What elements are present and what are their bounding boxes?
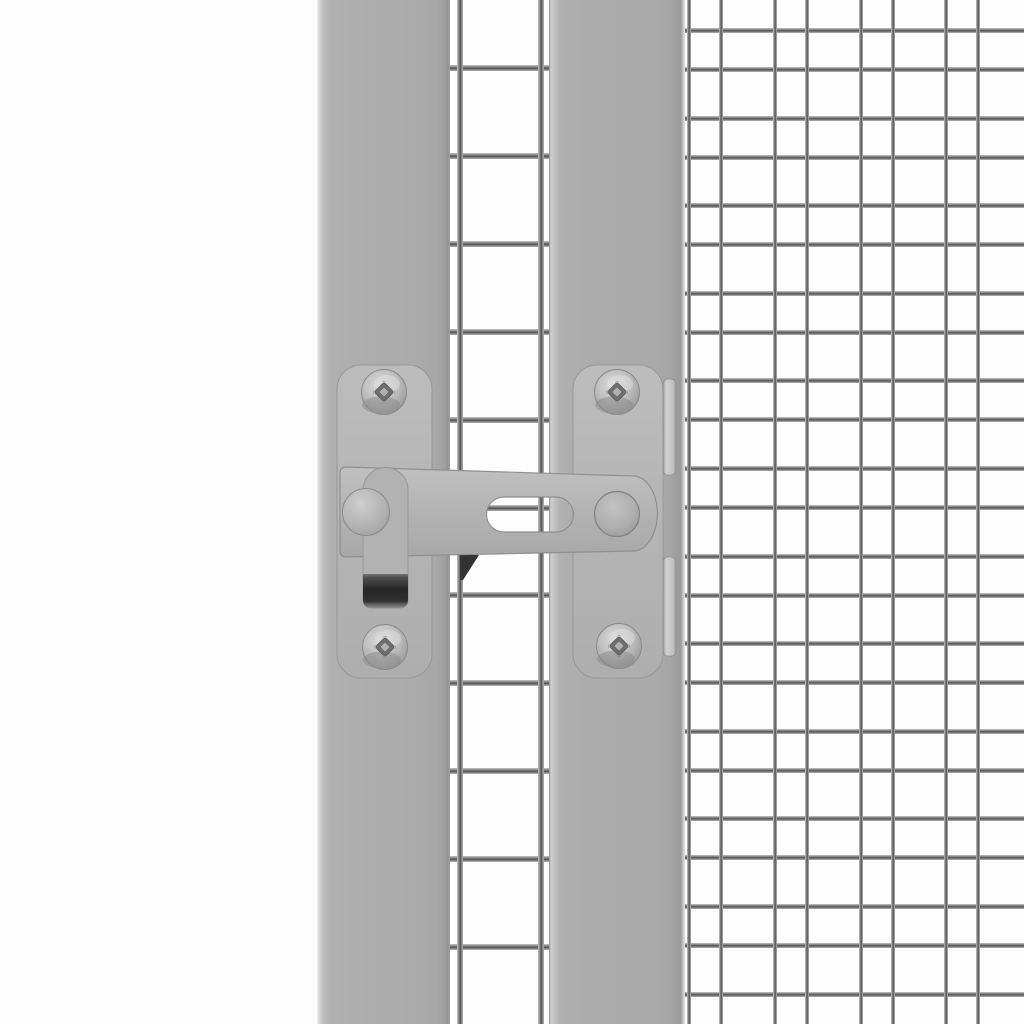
product-photo — [0, 0, 1024, 1024]
mesh-wire-horizontal — [450, 65, 549, 71]
mesh-wire-horizontal — [685, 992, 1024, 997]
mesh-wire-horizontal — [685, 28, 1024, 33]
mesh-wire-horizontal — [685, 641, 1024, 646]
mesh-wire-horizontal — [450, 944, 549, 950]
mesh-wire-vertical — [538, 0, 544, 1024]
mesh-wire-horizontal — [685, 67, 1024, 72]
mesh-wire-vertical — [891, 0, 895, 1024]
mesh-wire-horizontal — [685, 904, 1024, 909]
mesh-wire-horizontal — [685, 155, 1024, 160]
mesh-wire-horizontal — [685, 378, 1024, 383]
mesh-wire-horizontal — [685, 330, 1024, 335]
mesh-wire-vertical — [944, 0, 948, 1024]
mesh-wire-horizontal — [450, 153, 549, 159]
mesh-wire-horizontal — [685, 466, 1024, 471]
mesh-wire-vertical — [976, 0, 980, 1024]
mesh-wire-horizontal — [685, 291, 1024, 296]
mesh-wire-horizontal — [685, 554, 1024, 559]
mesh-wire-horizontal — [450, 680, 549, 686]
mesh-wire-horizontal — [685, 768, 1024, 773]
gap-mesh-panel — [450, 0, 549, 1024]
mesh-wire-horizontal — [685, 943, 1024, 948]
frame-post-right — [549, 0, 685, 1024]
mesh-wire-horizontal — [450, 856, 549, 862]
mesh-wire-horizontal — [450, 505, 549, 511]
mesh-wire-horizontal — [450, 768, 549, 774]
mesh-wire-vertical — [773, 0, 777, 1024]
mesh-wire-horizontal — [685, 203, 1024, 208]
mesh-wire-horizontal — [685, 417, 1024, 422]
mesh-wire-horizontal — [450, 417, 549, 423]
mesh-wire-horizontal — [685, 680, 1024, 685]
mesh-wire-horizontal — [685, 816, 1024, 821]
mesh-wire-horizontal — [450, 329, 549, 335]
mesh-wire-vertical — [719, 0, 723, 1024]
wire-mesh-panel — [685, 0, 1024, 1024]
mesh-wire-vertical — [457, 0, 463, 1024]
mesh-wire-vertical — [805, 0, 809, 1024]
mesh-wire-horizontal — [685, 116, 1024, 121]
mesh-wire-horizontal — [685, 242, 1024, 247]
mesh-wire-horizontal — [450, 592, 549, 598]
mesh-wire-horizontal — [685, 593, 1024, 598]
mesh-wire-horizontal — [685, 505, 1024, 510]
mesh-wire-vertical — [859, 0, 863, 1024]
mesh-wire-horizontal — [685, 855, 1024, 860]
mesh-wire-horizontal — [685, 729, 1024, 734]
mesh-wire-horizontal — [450, 241, 549, 247]
mesh-wire-vertical — [687, 0, 691, 1024]
frame-post-left — [317, 0, 450, 1024]
